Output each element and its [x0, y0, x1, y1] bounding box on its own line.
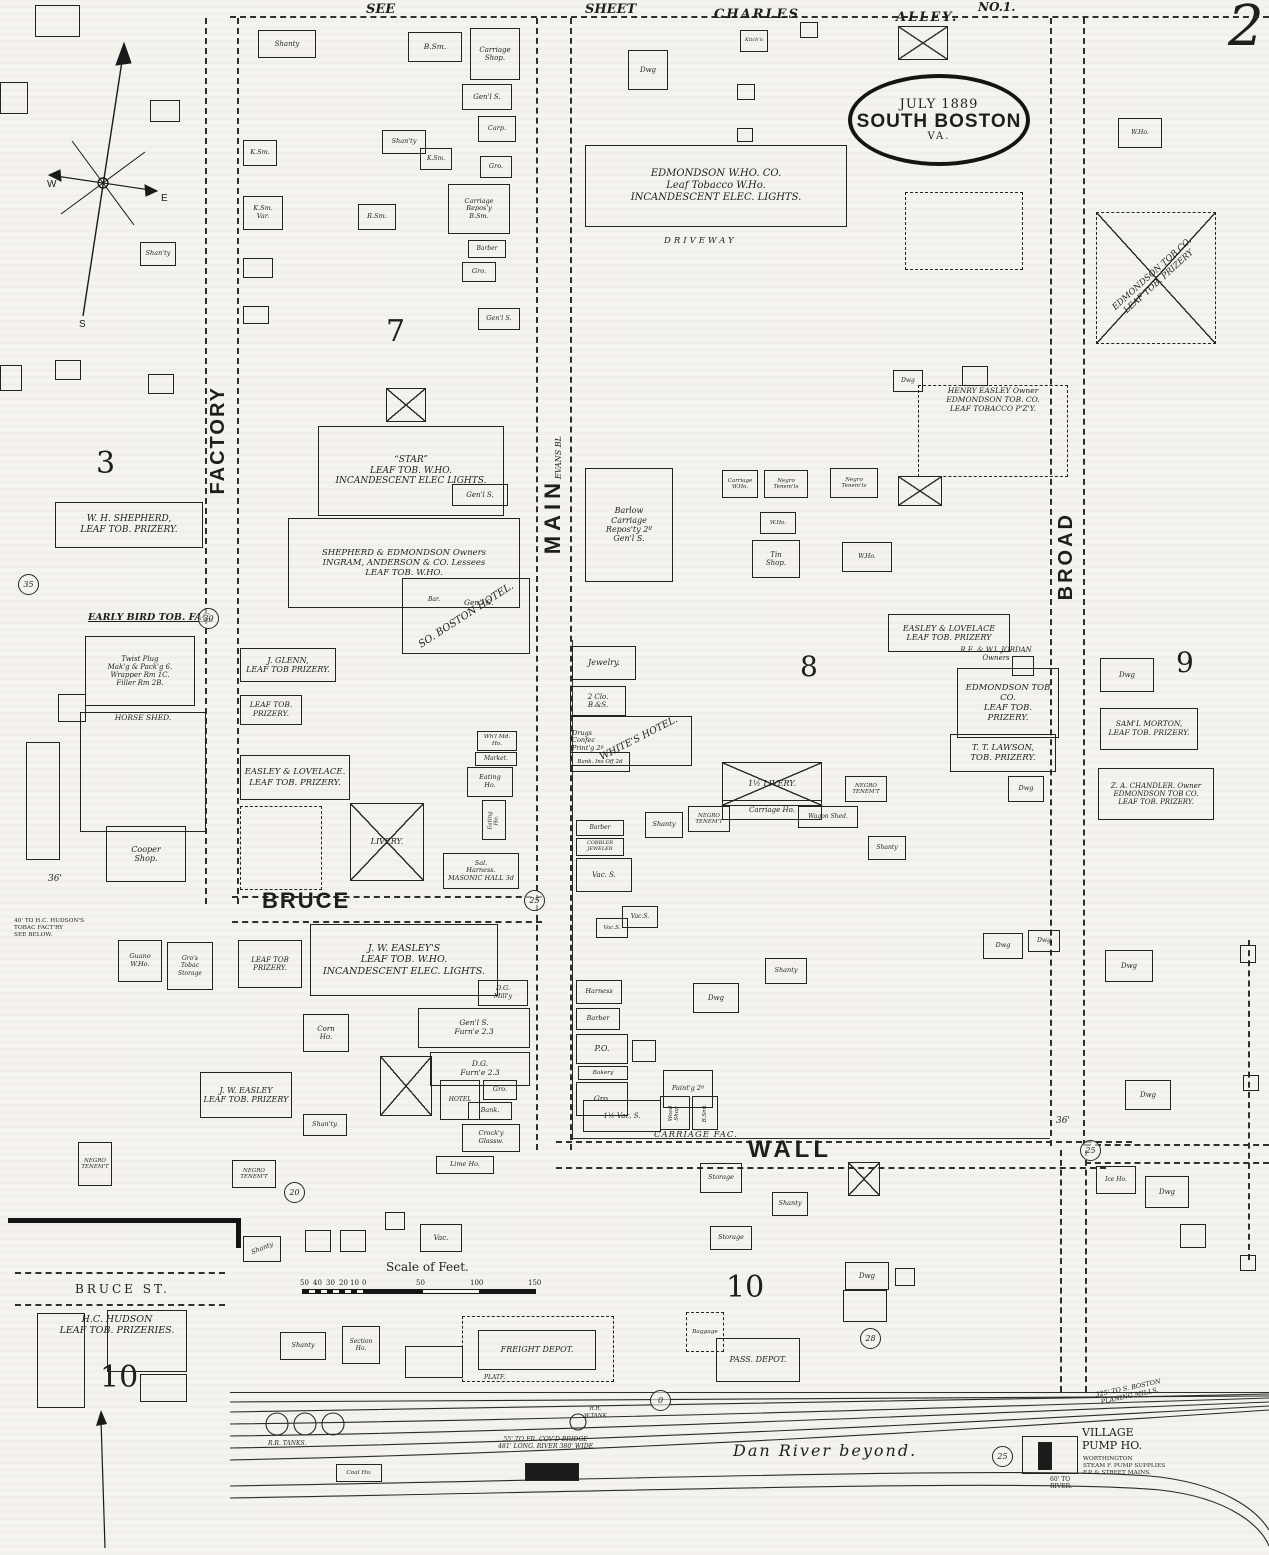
wh-shepherd-prizery: W. H. SHEPHERD, LEAF TOB. PRIZERY. — [55, 502, 203, 548]
negro-tenement-label: NEGRO TENEM'T — [81, 1158, 108, 1171]
grocery-label: Gro. — [489, 163, 503, 171]
outbuilding — [243, 258, 273, 278]
wagon-shed-label: Wagon Shed. — [808, 813, 848, 820]
masonic-hall-label: Sal. Harness. MASONIC HALL 3d — [448, 860, 514, 883]
negro-tenement: NEGRO TENEM'T — [845, 776, 887, 802]
warehouse — [240, 806, 322, 890]
easley-lovelace-prizery-w-label: EASLEY & LOVELACE. LEAF TOB. PRIZERY. — [245, 767, 346, 787]
edmondson-prizery-9-label: EDMONDSON TOB CO. LEAF TOB. PRIZERY — [1111, 236, 1201, 320]
map-label: PLATF. — [484, 1374, 505, 1381]
district-number: 10 — [100, 1360, 138, 1395]
horse-shed: HORSE SHED. — [80, 712, 206, 832]
k-sm-shop-label: K.Sm. Var. — [253, 205, 273, 220]
tobacco-storage-label: Gro's Tobac Storage — [178, 955, 202, 976]
shanty: Shan'ty. — [303, 1114, 347, 1136]
street-line — [1050, 18, 1052, 1146]
shanty-label: Shan'ty — [392, 138, 417, 146]
outbuilding — [1243, 1075, 1259, 1091]
leaf-tob-prizery: LEAF TOB PRIZERY. — [238, 940, 302, 988]
scale-tick: 30 — [326, 1279, 335, 1287]
paint-shop-label: Paint'g 2º — [672, 1085, 704, 1093]
map-label: WORTHINGTON STEAM F. PUMP SUPPLIES F.P. … — [1083, 1456, 1165, 1477]
barber-shop: Barber — [576, 1008, 620, 1030]
dwelling: Dwg — [1028, 930, 1060, 952]
clothing-boots-shoes: 2 Clo. B.&S. — [570, 686, 626, 716]
pass-depot-label: PASS. DEPOT. — [730, 1355, 787, 1364]
outbuilding — [962, 366, 988, 386]
market: Market. — [475, 752, 517, 766]
dwelling — [843, 1290, 887, 1322]
barber-shop-label: Barber — [587, 1015, 610, 1023]
dwelling: Dwg — [693, 983, 739, 1013]
warehouse-sm: W.Ho. — [1118, 118, 1162, 148]
street-line — [556, 1167, 1106, 1169]
storage: Storage — [710, 1226, 752, 1250]
street-line — [536, 18, 538, 1150]
warehouse-sm-label: W.Ho. — [770, 520, 786, 526]
tt-lawson-prizery-label: T. T. LAWSON, TOB. PRIZERY. — [970, 743, 1035, 763]
negro-tenements: Negro Tenem'ts — [764, 470, 808, 498]
outbuilding — [0, 82, 28, 114]
genl-store-label: Gen'l S. — [473, 93, 500, 101]
sanborn-map-canvas: N W E S JULY 1889 SOUTH BOSTON VA. 2 Sha… — [0, 0, 1269, 1555]
dwelling: Dwg — [1125, 1080, 1171, 1110]
district-number: 8 — [800, 650, 818, 683]
cobbler-jeweler-label: COBBLER JEWELER — [587, 841, 613, 853]
circled-number: 25 — [1080, 1140, 1101, 1161]
warehouse-sm: W.Ho. — [842, 542, 892, 572]
outbuilding — [243, 306, 269, 324]
star-warehouse-label: “STAR” LEAF TOB. W.HO. INCANDESCENT ELEC… — [336, 455, 487, 487]
jw-easley-warehouse-label: J. W. EASLEY'S LEAF TOB. W.HO. INCANDESC… — [323, 943, 485, 977]
map-label: EVANS BL — [554, 436, 564, 479]
dwelling: Dwg — [1145, 1176, 1189, 1208]
saml-morton-prizery: SAM'L MORTON, LEAF TOB. PRIZERY. — [1100, 708, 1198, 750]
scale-tick: 100 — [470, 1279, 483, 1287]
shanty: Shanty — [243, 1236, 281, 1262]
street-line — [15, 1304, 225, 1306]
early-bird-factory-label: Twist Plug Mak'g & Pack'g 6. Wrapper Rm … — [108, 655, 173, 688]
genl-store: Gen'l S. — [452, 484, 508, 506]
compass-s: S — [79, 319, 86, 330]
vacant-store-label: Vac.S. — [604, 925, 621, 931]
map-title-city: SOUTH BOSTON — [857, 112, 1022, 132]
easley-lovelace-prizery-w: EASLEY & LOVELACE. LEAF TOB. PRIZERY. — [240, 755, 350, 800]
barber-shop: Barber — [468, 240, 506, 258]
edmondson-prizery: EDMONDSON TOB CO. LEAF TOB. PRIZERY. — [957, 668, 1059, 738]
map-label: MAIN — [540, 478, 566, 554]
clothing-boots-shoes-label: 2 Clo. B.&S. — [588, 693, 609, 710]
scale-tick: 50 — [300, 1279, 309, 1287]
storage-label: Storage — [708, 1174, 734, 1182]
circled-number: 30 — [198, 608, 219, 629]
negro-tenement: NEGRO TENEM'T — [232, 1160, 276, 1188]
street-line — [1083, 18, 1085, 1146]
street-line — [556, 1141, 1132, 1143]
dwelling-label: Dwg — [1140, 1091, 1156, 1099]
ice-house: Ice Ho. — [1096, 1166, 1136, 1194]
street-line — [236, 1218, 241, 1248]
freight-depot: FREIGHT DEPOT. — [478, 1330, 596, 1370]
dwelling: Dwg — [845, 1262, 889, 1290]
saml-morton-prizery-label: SAM'L MORTON, LEAF TOB. PRIZERY. — [1108, 720, 1189, 738]
dwelling: Dwg — [1008, 776, 1044, 802]
henry-easley-prizery: HENRY EASLEY Owner EDMONDSON TOB. CO. LE… — [918, 385, 1068, 477]
circled-number: 35 — [18, 574, 39, 595]
dwelling-label: Dwg — [901, 377, 915, 384]
henry-easley-prizery-label: HENRY EASLEY Owner EDMONDSON TOB. CO. LE… — [946, 387, 1039, 414]
negro-tenements-label: Negro Tenem'ts — [841, 477, 866, 490]
circled-number: 20 — [284, 1182, 305, 1203]
whites-hotel-label: Drugs Confec Print'g 2º — [572, 730, 604, 753]
outbuilding — [737, 84, 755, 100]
map-label: SHEET — [585, 2, 636, 18]
k-sm-shop: K.Sm. — [420, 148, 452, 170]
genl-store: Gen'l S. — [462, 84, 512, 110]
shanty: Shanty — [645, 812, 683, 838]
bank-label: Bank. — [481, 1107, 500, 1115]
k-sm-shop-label: K.Sm. — [427, 155, 445, 162]
wood-shop-label: Wood Shop — [669, 1105, 682, 1120]
dwelling-label: Dwg — [1121, 962, 1137, 970]
wholesale-house: Wh'l Md. Ho. — [477, 731, 517, 751]
genl-store-furniture: Gen'l S. Furn'e 2.3 — [418, 1008, 530, 1048]
street-line — [1085, 1144, 1269, 1146]
b-sm-shop: B.Sm. — [408, 32, 462, 62]
livery-stable-label: 1½ LIVERY. — [748, 779, 796, 788]
pump-machinery — [1038, 1442, 1052, 1470]
early-bird-factory: Twist Plug Mak'g & Pack'g 6. Wrapper Rm … — [85, 636, 195, 706]
outbuilding — [148, 374, 174, 394]
crossed-building — [848, 1162, 880, 1196]
street-line — [15, 1272, 225, 1274]
dg-furniture-label: D.G. Furn'e 2.3 — [460, 1060, 499, 1078]
crockery-glassware-label: Crock'y Glassw. — [478, 1130, 503, 1145]
map-label: BROAD — [1054, 512, 1078, 600]
dg-millinery-label: D.G. Mill'y — [494, 985, 512, 1000]
dwelling: Dwg — [1100, 658, 1154, 692]
wood-shop: Wood Shop — [660, 1096, 690, 1130]
outbuilding — [895, 1268, 915, 1286]
scale-bar-coarse — [366, 1289, 536, 1294]
grocery: Gro. — [462, 262, 496, 282]
carriage-warehouse: Carriage W.Ho. — [722, 470, 758, 498]
shanty: Shanty — [280, 1332, 326, 1360]
harness-shop: Harness — [576, 980, 622, 1004]
jw-easley-warehouse: J. W. EASLEY'S LEAF TOB. W.HO. INCANDESC… — [310, 924, 498, 996]
dwelling-label: Dwg — [1037, 937, 1051, 944]
map-label: NO.1. — [978, 0, 1015, 14]
harness-shop-label: Harness — [585, 988, 612, 996]
eating-house: Eating Ho. — [467, 767, 513, 797]
map-label: Scale of Feet. — [386, 1260, 469, 1274]
street-line — [8, 1218, 238, 1223]
dwelling-label: Dwg — [640, 66, 656, 74]
shanty-label: Shanty — [275, 40, 300, 48]
map-label: CHARLES — [714, 7, 800, 23]
coal-house: Coal Ho. — [336, 1464, 382, 1482]
negro-tenement-label: NEGRO TENEM'T — [240, 1168, 267, 1181]
guano-warehouse: Guano W.Ho. — [118, 940, 162, 982]
k-sm-shop-label: K.Sm. — [250, 149, 270, 157]
easley-lovelace-prizery-e-label: EASLEY & LOVELACE LEAF TOB. PRIZERY — [903, 624, 995, 643]
tobacco-storage: Gro's Tobac Storage — [167, 942, 213, 990]
cooper-shop-label: Cooper Shop. — [131, 845, 160, 864]
negro-tenements: Negro Tenem'ts — [830, 468, 878, 498]
crossed-building — [380, 1056, 432, 1116]
north-arrow-inset — [95, 1408, 115, 1555]
vacant-store: 1½ Vac. S. — [583, 1100, 661, 1132]
genl-store-label: Gen'l S. — [466, 491, 493, 499]
freight-depot-label: FREIGHT DEPOT. — [501, 1345, 574, 1354]
district-number: 3 — [96, 446, 115, 481]
edmondson-warehouse-label: EDMONDSON W.HO. CO. Leaf Tobacco W.Ho. I… — [631, 168, 802, 203]
circled-number: 28 — [860, 1328, 881, 1349]
map-label: SEE — [366, 2, 395, 18]
scale-tick: 50 — [416, 1279, 425, 1287]
pass-depot: PASS. DEPOT. — [716, 1338, 800, 1382]
outbuilding — [0, 365, 22, 391]
scale-bar-fine — [302, 1289, 366, 1294]
wholesale-house-label: Wh'l Md. Ho. — [484, 734, 510, 748]
edmondson-prizery-9: EDMONDSON TOB CO. LEAF TOB. PRIZERY — [1096, 212, 1216, 344]
genl-store: Gen'l S. — [478, 308, 520, 330]
negro-tenement: NEGRO TENEM'T — [78, 1142, 112, 1186]
b-smith-label: B.Smi. — [702, 1104, 708, 1122]
sheet-number: 2 — [1228, 0, 1264, 59]
shanty: Shan'ty — [140, 242, 176, 266]
section-house-label: Section Ho. — [350, 1338, 373, 1352]
carriage-house-label: Carriage Ho. — [749, 806, 795, 814]
carriage-repository-label: Carriage Repos'y B.Sm. — [464, 198, 493, 221]
negro-tenement: NEGRO TENEM'T — [688, 806, 730, 832]
outbuilding — [340, 1230, 366, 1252]
r-sm-shop-label: R.Sm. — [367, 213, 387, 221]
bank-insurance-label: Bank. Ins Off 2d — [577, 759, 622, 765]
map-label: CARRIAGE FAC. — [654, 1130, 738, 1140]
masonic-hall: Sal. Harness. MASONIC HALL 3d — [443, 853, 519, 889]
tt-lawson-prizery: T. T. LAWSON, TOB. PRIZERY. — [950, 734, 1056, 772]
map-label: 60' TO RIVER. — [1050, 1476, 1072, 1490]
shanty-label: Shanty — [292, 1342, 315, 1350]
crossed-building — [386, 388, 426, 422]
vacant-store: Vac. S. — [576, 858, 632, 892]
post-office: P.O. — [576, 1034, 628, 1064]
dwelling: Dwg — [628, 50, 668, 90]
storage: Storage — [700, 1163, 742, 1193]
dwelling: Dwg — [1105, 950, 1153, 982]
barlow-carriage-repository-label: Barlow Carriage Repos'ty 2º Gen'l S. — [606, 506, 652, 544]
dwelling: Dwg — [983, 933, 1023, 959]
bakery-label: Bakery — [593, 1070, 614, 1077]
horse-shed-label: HORSE SHED. — [115, 714, 172, 723]
barber-shop-label: Barber — [589, 824, 610, 831]
livery-stable: LIVERY. — [350, 803, 424, 881]
k-sm-shop: K.Sm. — [243, 140, 277, 166]
dwelling-label: Dwg — [1159, 1188, 1175, 1196]
map-label: EARLY BIRD TOB. FAC. — [88, 612, 213, 623]
barlow-carriage-repository: Barlow Carriage Repos'ty 2º Gen'l S. — [585, 468, 673, 582]
b-smith: B.Smi. — [692, 1096, 718, 1130]
warehouse-sm-label: W.Ho. — [1131, 129, 1149, 136]
map-label: Gen'l S. — [464, 598, 493, 607]
chandler-prizery-label: Z. A. CHANDLER. Owner EDMONDSON TOB CO. … — [1111, 782, 1201, 807]
storage-label: Storage — [718, 1234, 744, 1242]
wh-shepherd-prizery-label: W. H. SHEPHERD, LEAF TOB. PRIZERY. — [80, 514, 177, 535]
warehouse-sm: W.Ho. — [760, 512, 796, 534]
outbuilding — [35, 5, 80, 37]
guano-warehouse-label: Guano W.Ho. — [129, 953, 150, 968]
kitchen: Kitch'n — [740, 30, 768, 52]
shanty: Shanty — [765, 958, 807, 984]
outbuilding — [632, 1040, 656, 1062]
lime-house-label: Lime Ho. — [450, 1161, 480, 1169]
carriage-repository: Carriage Repos'y B.Sm. — [448, 184, 510, 234]
map-label: R.R. W.TANK — [584, 1406, 607, 1419]
outbuilding — [1240, 945, 1256, 963]
street-line — [237, 18, 239, 904]
street-line — [1060, 1150, 1062, 1392]
barber-shop-label: Barber — [476, 245, 497, 252]
crossed-building — [898, 26, 948, 60]
outbuilding — [55, 360, 81, 380]
carpenter-shop: Carp. — [478, 116, 516, 142]
map-label: H.C. HUDSON LEAF TOB. PRIZERIES. — [42, 1314, 192, 1337]
jw-easley-prizery: J. W. EASLEY LEAF TOB. PRIZERY — [200, 1072, 292, 1118]
section-house: Section Ho. — [342, 1326, 380, 1364]
ice-house-label: Ice Ho. — [1105, 1176, 1127, 1183]
street-line — [232, 921, 542, 923]
map-title-date: JULY 1889 — [900, 98, 979, 112]
vacant-store-label: Vac. S. — [592, 871, 616, 879]
outbuilding — [385, 1212, 405, 1230]
carpenter-shop-label: Carp. — [488, 125, 506, 133]
barber-shop: Barber — [576, 820, 624, 836]
edmondson-prizery-label: EDMONDSON TOB CO. LEAF TOB. PRIZERY. — [959, 683, 1057, 723]
district-number: 7 — [386, 314, 405, 349]
shanty-label: Shanty — [876, 844, 897, 851]
genl-store-furniture-label: Gen'l S. Furn'e 2.3 — [454, 1019, 493, 1037]
scale-tick: 20 — [339, 1279, 348, 1287]
carriage-shop: Carriage Shop. — [470, 28, 520, 80]
dg-millinery: D.G. Mill'y — [478, 980, 528, 1006]
circled-number: 25 — [524, 890, 545, 911]
tin-shop: Tin Shop. — [752, 540, 800, 578]
eating-house-label: Eating Ho. — [488, 811, 501, 829]
carriage-shop-label: Carriage Shop. — [479, 46, 510, 63]
warehouse — [905, 192, 1023, 270]
tin-shop-label: Tin Shop. — [766, 551, 786, 568]
map-label: 36' — [1056, 1116, 1070, 1127]
lime-house: Lime Ho. — [436, 1156, 494, 1174]
market-label: Market. — [484, 755, 508, 762]
shanty: Shanty — [772, 1192, 808, 1216]
shanty: Shanty — [258, 30, 316, 58]
negro-tenement-label: NEGRO TENEM'T — [852, 783, 879, 796]
grocery-label: Gro. — [493, 1086, 507, 1094]
corn-house-label: Corn Ho. — [317, 1025, 334, 1042]
shepherd-edmondson-warehouse-label: SHEPHERD & EDMONDSON Owners INGRAM, ANDE… — [322, 548, 486, 578]
cooper-shop: Cooper Shop. — [106, 826, 186, 882]
scale-tick: 10 — [350, 1279, 359, 1287]
jw-easley-prizery-label: J. W. EASLEY LEAF TOB. PRIZERY — [204, 1086, 289, 1105]
chandler-prizery: Z. A. CHANDLER. Owner EDMONDSON TOB CO. … — [1098, 768, 1214, 820]
street-line — [1248, 940, 1250, 1260]
b-sm-shop-label: B.Sm. — [424, 43, 447, 52]
shanty-label: Shanty — [779, 1200, 802, 1208]
eating-house: Eating Ho. — [482, 800, 506, 840]
compass-n: N — [120, 52, 127, 63]
corn-house: Corn Ho. — [303, 1014, 349, 1052]
map-label: DRIVEWAY — [664, 236, 737, 246]
coal-house-label: Coal Ho. — [346, 1470, 371, 1477]
shanty-label: Shanty — [653, 821, 676, 829]
k-sm-shop: K.Sm. Var. — [243, 196, 283, 230]
grocery: Gro. — [483, 1080, 517, 1100]
crossed-building — [898, 476, 942, 506]
leaf-tob-prizery: LEAF TOB. PRIZERY. — [240, 695, 302, 725]
street-line — [1085, 1162, 1269, 1164]
hudson-annex — [140, 1374, 187, 1402]
map-label: FACTORY — [206, 386, 230, 494]
leaf-tob-prizery-label: LEAF TOB. PRIZERY. — [250, 701, 293, 719]
scale-tick: 40 — [313, 1279, 322, 1287]
map-label: VILLAGE PUMP HO. — [1082, 1426, 1142, 1452]
vacant-store-label: 1½ Vac. S. — [603, 1112, 640, 1120]
j-glenn-prizery: J. GLENN, LEAF TOB PRIZERY. — [240, 648, 336, 682]
grocery-label: Gro. — [472, 268, 486, 276]
vacant-store: Vac.S. — [596, 918, 628, 938]
jewelry-store-label: Jewelry. — [588, 658, 620, 667]
warehouse-sm-label: W.Ho. — [858, 553, 876, 560]
vacant-label: Vac. — [434, 1234, 449, 1242]
livery-stable-label: LIVERY. — [371, 837, 404, 846]
map-label: 40' TO H.C. HUDSON'S TOBAC FACT'RY SEE B… — [14, 918, 84, 939]
leaf-tob-prizery-label: LEAF TOB PRIZERY. — [251, 956, 288, 973]
storehouse — [525, 1463, 579, 1481]
outbuilding — [1180, 1224, 1206, 1248]
map-label: ALLEY. — [896, 10, 958, 26]
map-label: 36' — [48, 874, 62, 885]
so-boston-hotel-label: SO. BOSTON HOTEL. — [416, 581, 515, 651]
bakery: Bakery — [578, 1066, 628, 1080]
map-label: R.E. & W.I. JORDAN Owners — [946, 646, 1046, 663]
cobbler-jeweler: COBBLER JEWELER — [576, 838, 624, 856]
map-label: BRUCE — [262, 888, 350, 914]
so-boston-hotel: SO. BOSTON HOTEL. — [402, 578, 530, 654]
map-label: WALL — [748, 1136, 832, 1165]
outbuilding — [800, 22, 818, 38]
negro-tenements-label: Negro Tenem'ts — [773, 478, 798, 491]
outbuilding — [305, 1230, 331, 1252]
map-label: Bar. — [428, 596, 440, 603]
district-number: 10 — [726, 1270, 764, 1305]
wagon-shed: Wagon Shed. — [798, 806, 858, 828]
j-glenn-prizery-label: J. GLENN, LEAF TOB PRIZERY. — [246, 656, 330, 675]
shanty-label: Shanty — [775, 967, 798, 975]
dwelling-label: Dwg — [1119, 671, 1135, 679]
compass-rose: N W E S — [23, 35, 183, 335]
outbuilding — [1240, 1255, 1256, 1271]
baggage-house-label: Baggage — [692, 1329, 718, 1336]
circled-number: 25 — [992, 1446, 1013, 1467]
bank: Bank. — [468, 1102, 512, 1120]
handwritten-parcel — [26, 742, 60, 860]
grocery: Gro. — [480, 156, 512, 178]
genl-store-label: Gen'l S. — [486, 315, 511, 323]
map-label: BRUCE ST. — [75, 1282, 170, 1296]
edmondson-warehouse: EDMONDSON W.HO. CO. Leaf Tobacco W.Ho. I… — [585, 145, 847, 227]
